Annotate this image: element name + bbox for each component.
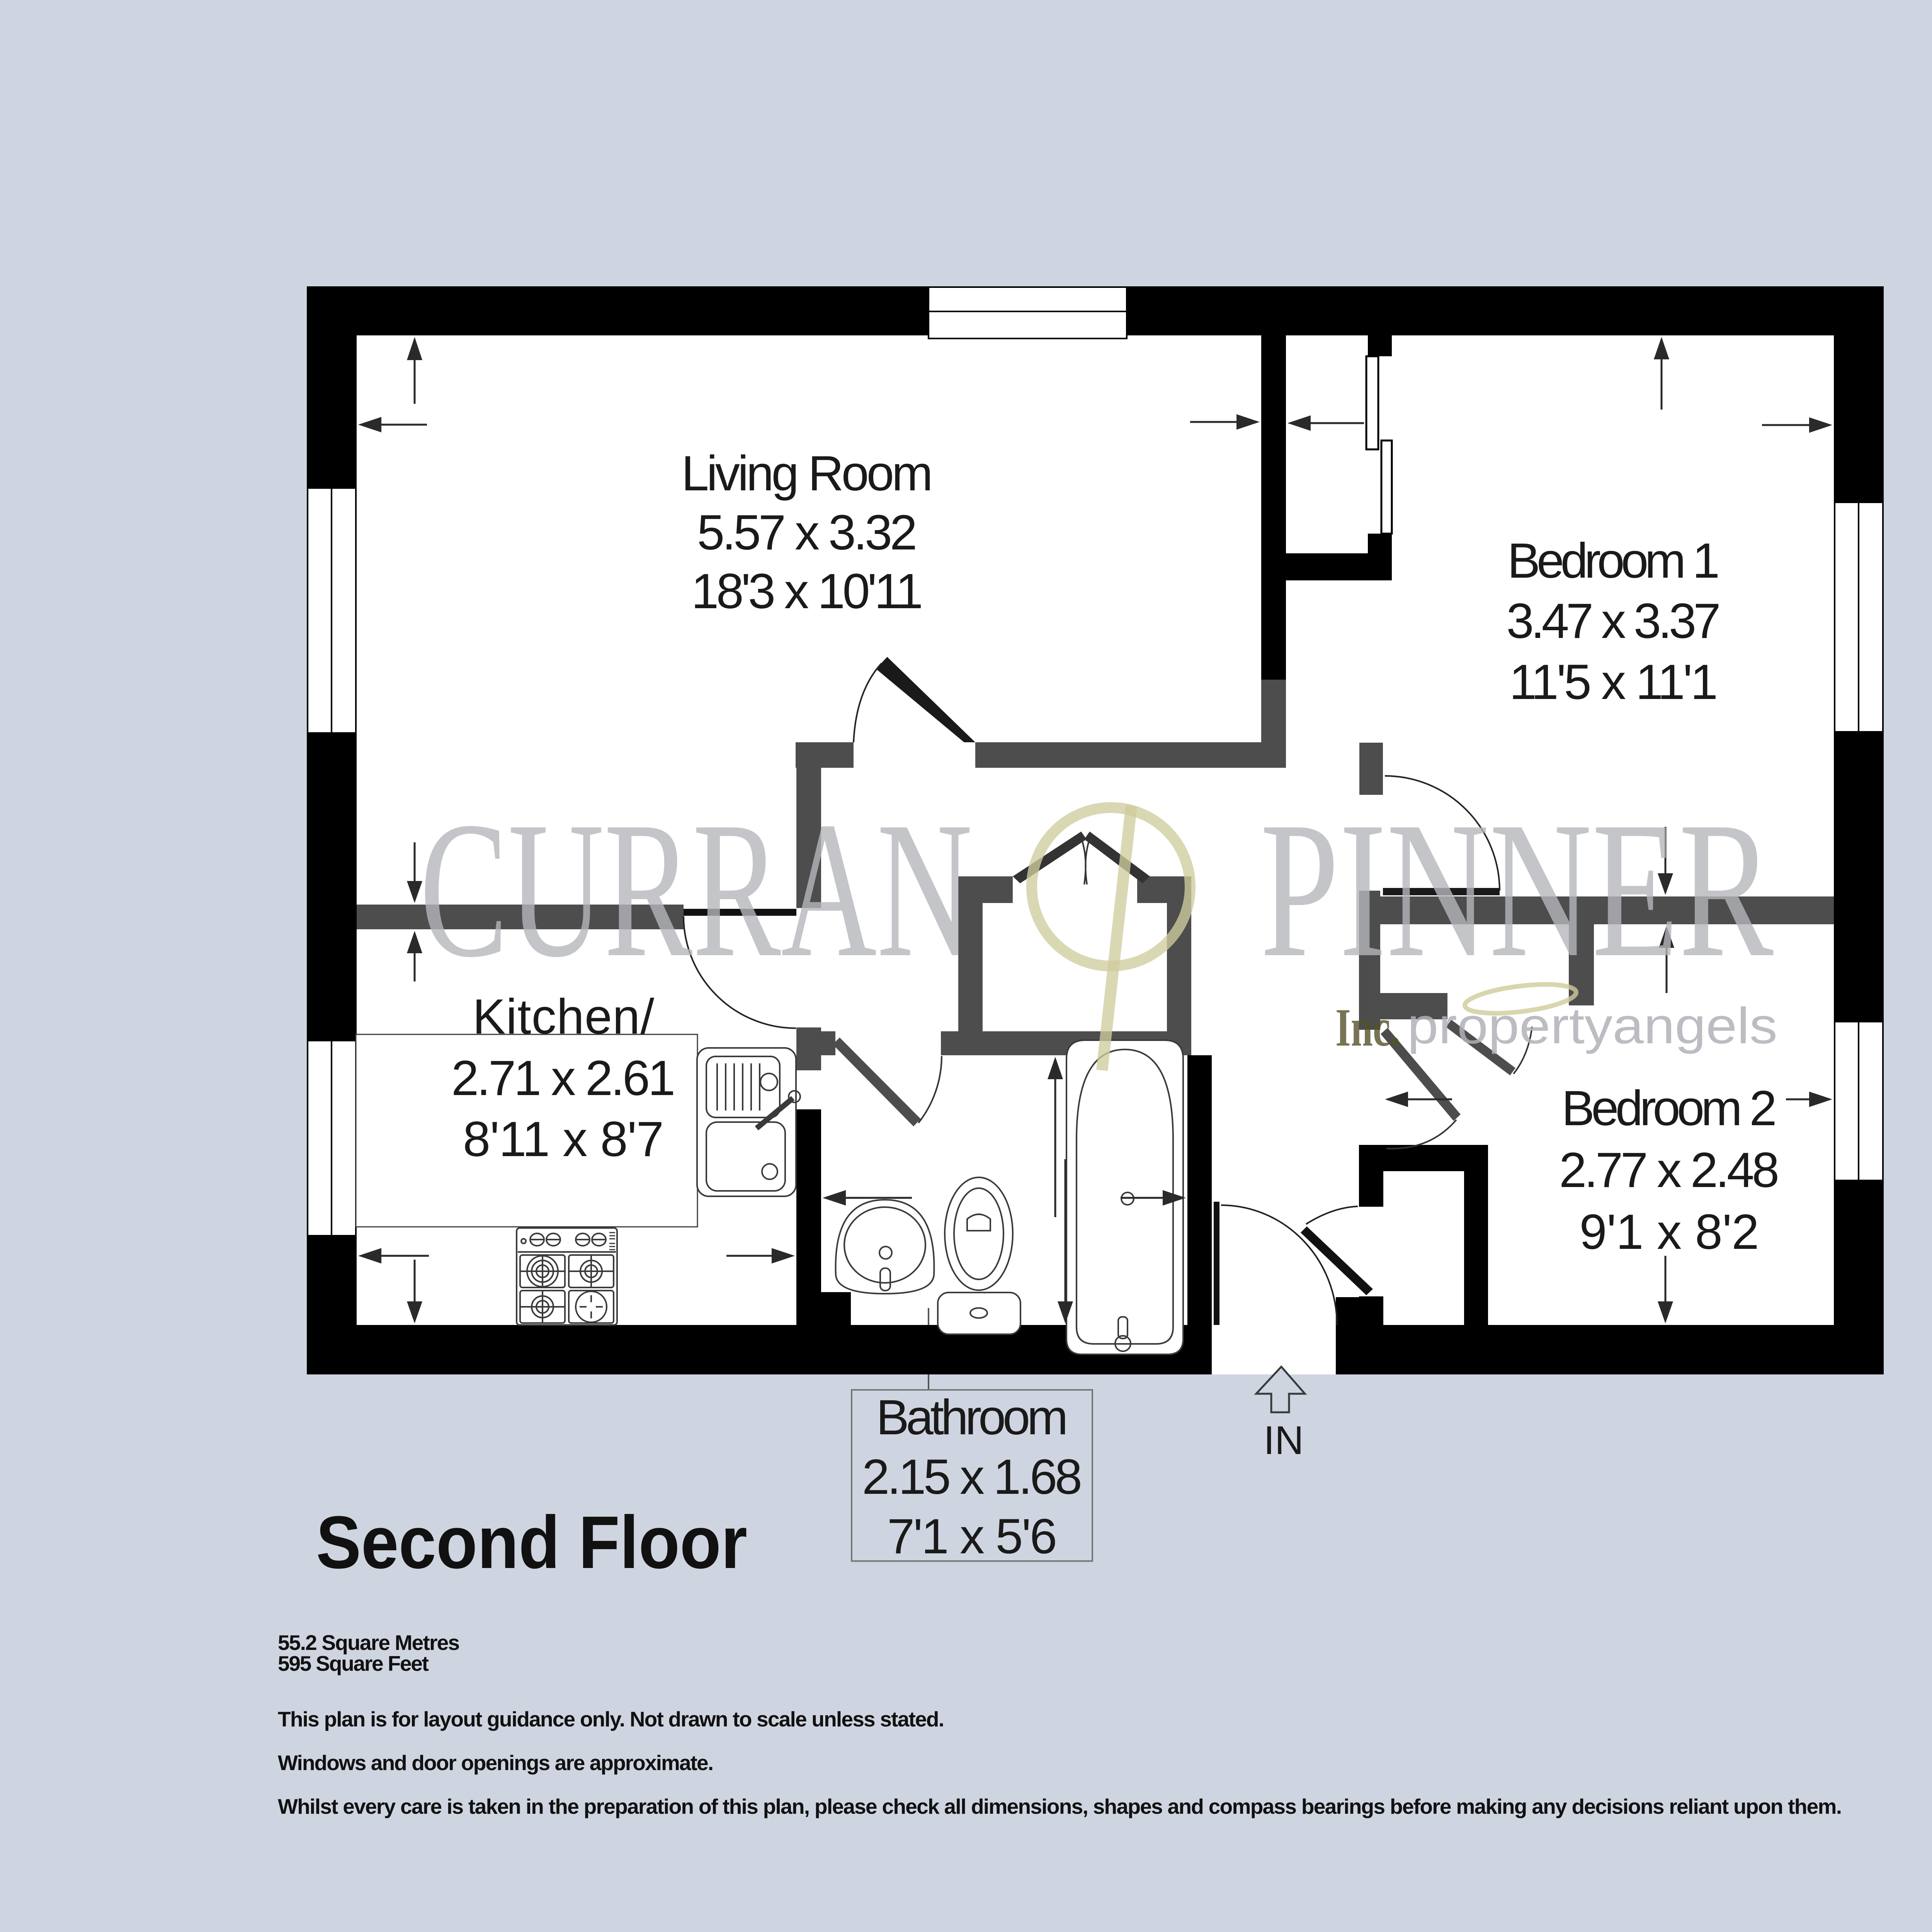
svg-text:2.15 x 1.68: 2.15 x 1.68 [862,1449,1082,1505]
svg-text:2.77 x 2.48: 2.77 x 2.48 [1559,1143,1779,1198]
svg-text:Bedroom 2: Bedroom 2 [1562,1081,1777,1136]
svg-text:5.57 x 3.32: 5.57 x 3.32 [697,505,917,560]
svg-text:Inc.: Inc. [1335,998,1400,1058]
svg-text:3.47 x 3.37: 3.47 x 3.37 [1507,594,1721,649]
svg-text:Bedroom 1: Bedroom 1 [1507,533,1720,588]
svg-text:595 Square Feet: 595 Square Feet [278,1651,429,1675]
svg-text:Living Room: Living Room [682,446,933,501]
svg-text:propertyangels: propertyangels [1407,997,1777,1054]
svg-text:2.71 x 2.61: 2.71 x 2.61 [451,1051,675,1106]
svg-text:Windows and door openings are: Windows and door openings are approximat… [278,1751,714,1775]
svg-text:11'5 x 11'1: 11'5 x 11'1 [1509,655,1718,710]
svg-text:18'3 x 10'11: 18'3 x 10'11 [691,564,923,619]
svg-text:Whilst every care is taken in: Whilst every care is taken in the prepar… [278,1794,1842,1818]
svg-text:9'1 x 8'2: 9'1 x 8'2 [1580,1204,1759,1260]
svg-text:CURRAN: CURRAN [420,782,973,998]
svg-text:Bathroom: Bathroom [876,1390,1068,1445]
svg-text:8'11 x 8'7: 8'11 x 8'7 [463,1112,664,1167]
svg-text:This plan is for layout guidan: This plan is for layout guidance only. N… [278,1707,944,1731]
svg-text:Second Floor: Second Floor [316,1500,747,1584]
svg-text:55.2 Square Metres: 55.2 Square Metres [278,1631,460,1655]
svg-text:IN: IN [1264,1418,1304,1463]
svg-text:PINNER: PINNER [1260,782,1774,998]
svg-text:7'1 x 5'6: 7'1 x 5'6 [887,1509,1057,1564]
